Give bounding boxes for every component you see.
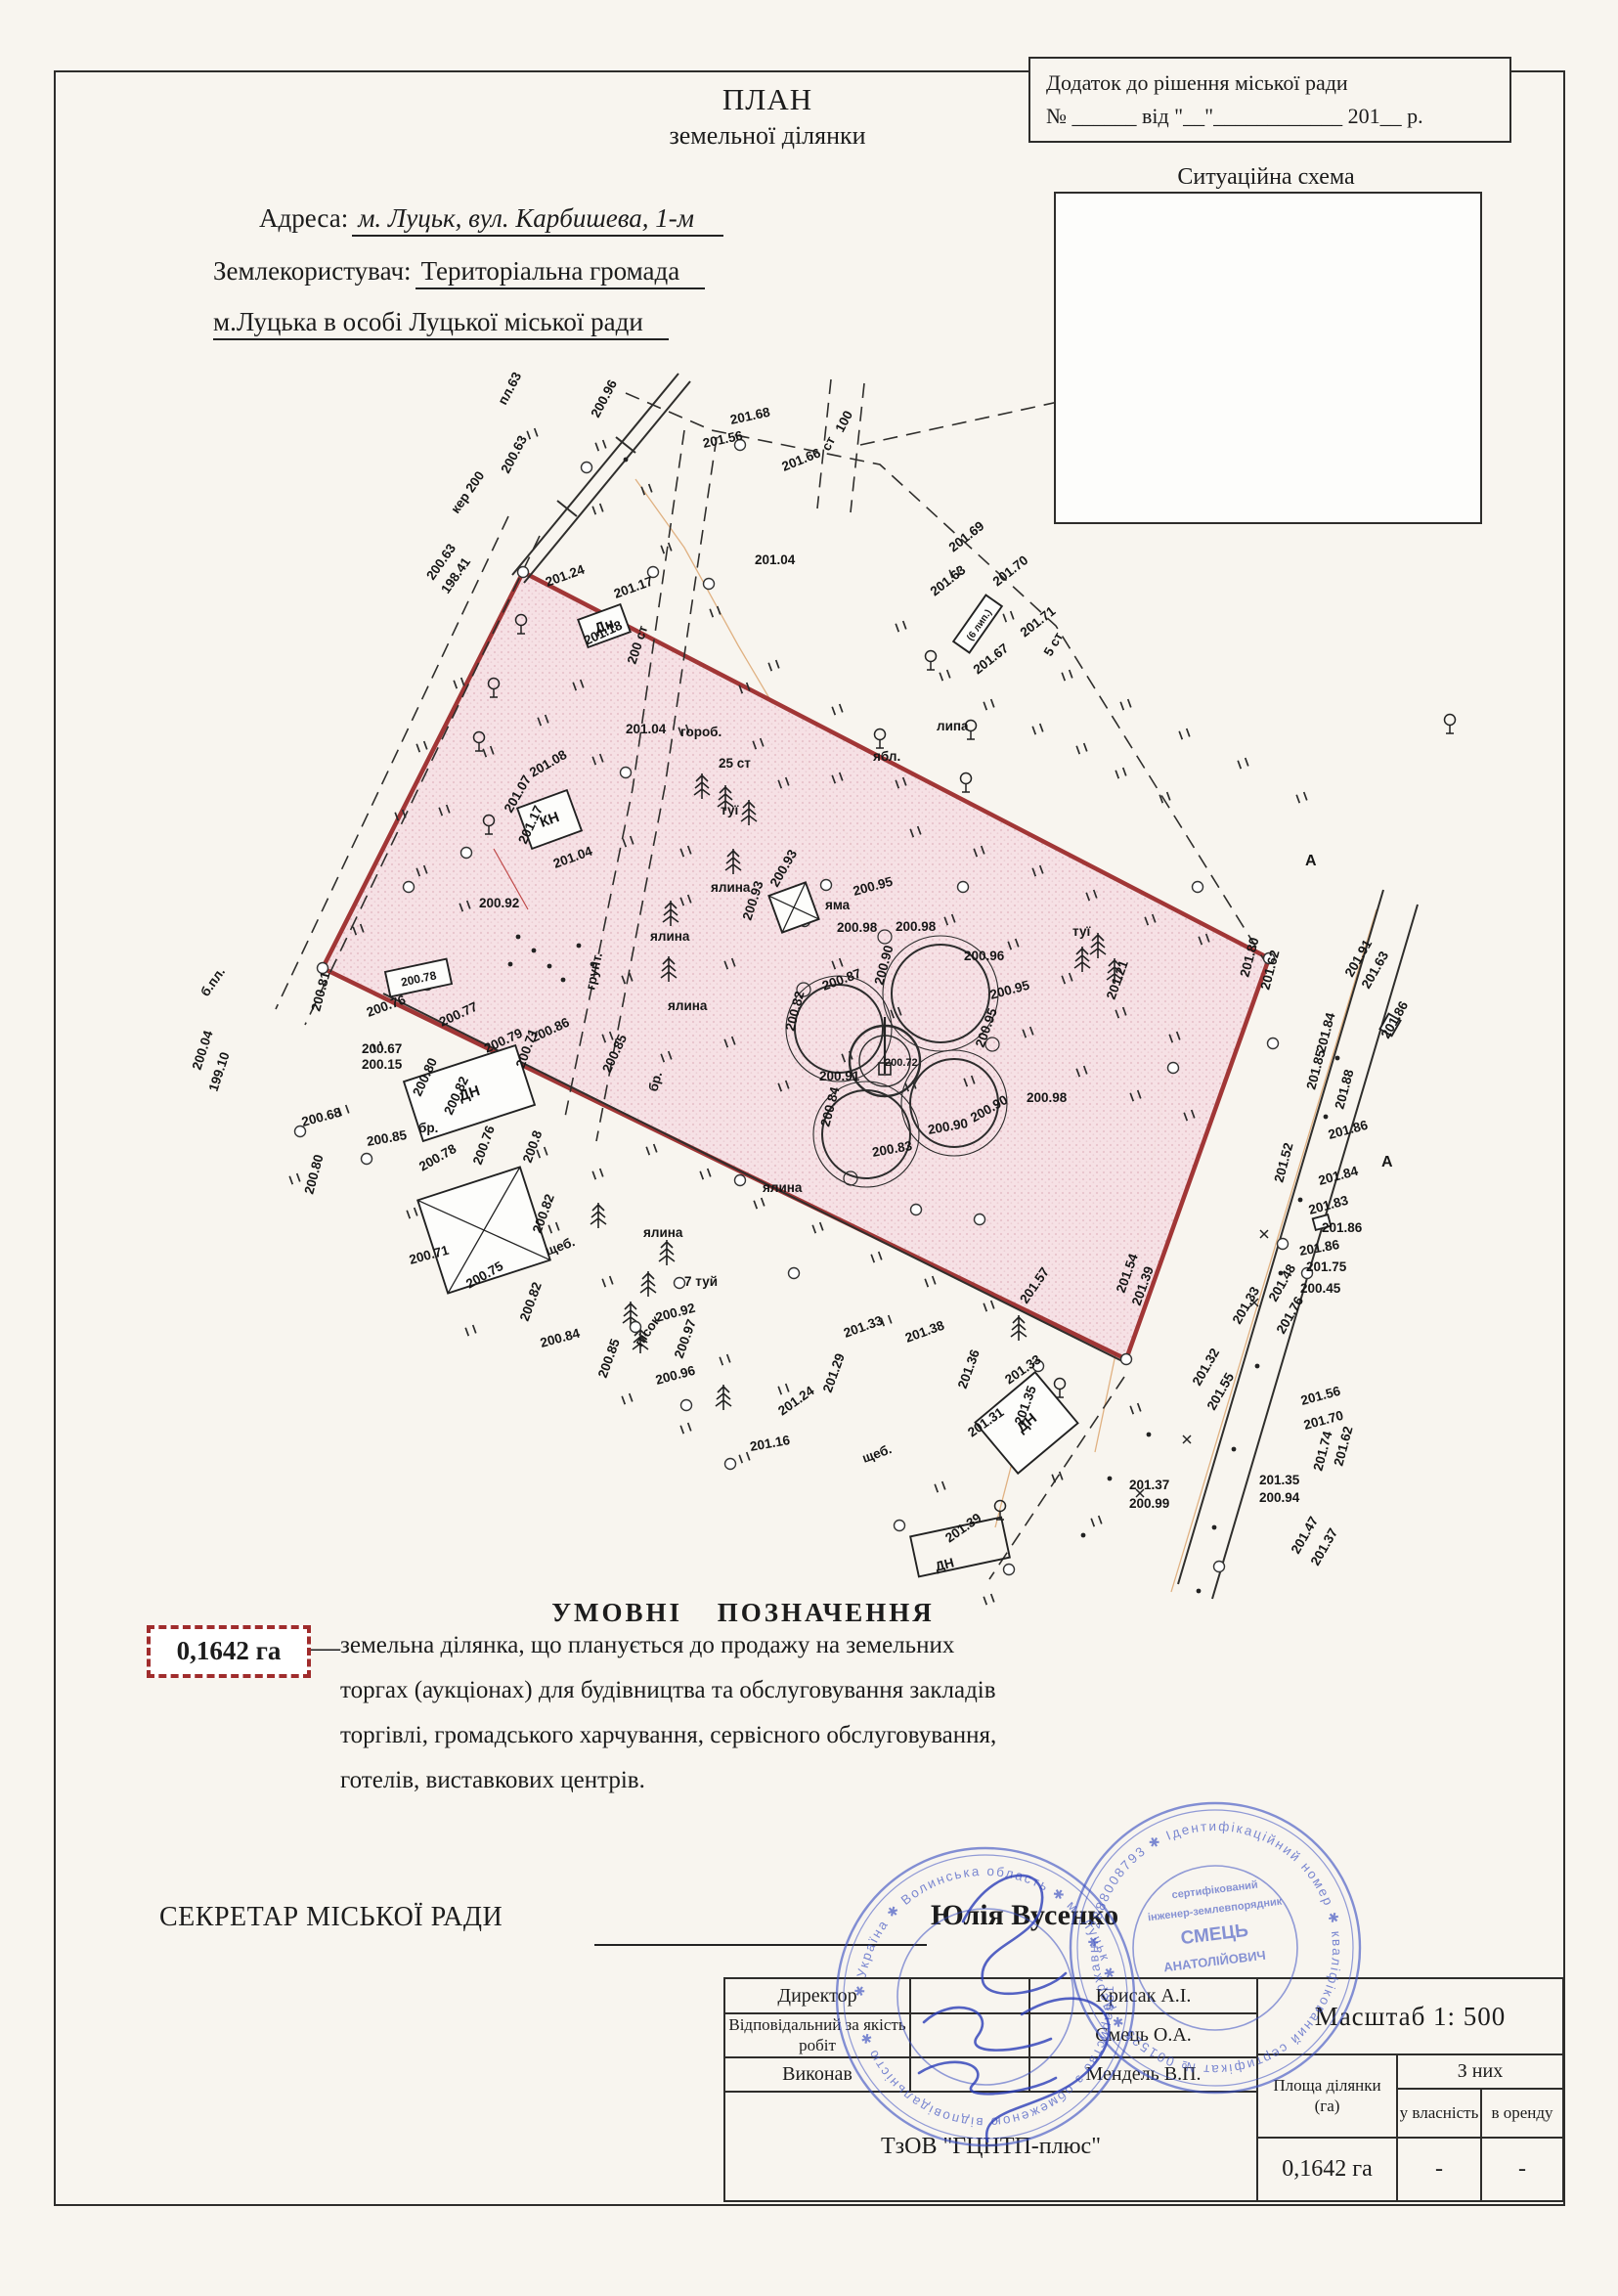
situational-title: Ситуаційна схема <box>1085 164 1447 191</box>
situational-map-box <box>1054 192 1482 524</box>
table-cell-scale: Масштаб 1: 500 <box>1256 1977 1564 2055</box>
table-cell-director-signature <box>909 1977 1030 2014</box>
table-cell-quality-signature <box>909 2012 1030 2058</box>
table-cell-company: ТзОВ "ГЦНТП-плюс" <box>723 2091 1258 2202</box>
landuser-value1: Територіальна громада <box>415 256 706 289</box>
table-cell-rent-header: в оренду <box>1480 2088 1564 2139</box>
legend-paragraph: земельна ділянка, що планується до прода… <box>340 1623 1181 1803</box>
table-cell-quality: Відповідальний за якість робіт <box>723 2012 911 2058</box>
address-value: м. Луцьк, вул. Карбишева, 1-м <box>352 203 723 237</box>
scanned-land-plan-page: { "header": { "title1": "ПЛАН", "title2"… <box>0 0 1618 2296</box>
address-label: Адреса: <box>259 203 348 233</box>
legend-dash: — <box>311 1631 340 1664</box>
page-title: ПЛАН <box>572 82 963 117</box>
table-cell-own-header: у власність <box>1396 2088 1482 2139</box>
table-cell-rent-value: - <box>1480 2137 1564 2202</box>
table-cell-ofthem: З них <box>1396 2053 1564 2090</box>
address-row: Адреса: м. Луцьк, вул. Карбишева, 1-м <box>259 203 723 234</box>
legend-line2: торгах (аукціонах) для будівництва та об… <box>340 1668 1181 1713</box>
annex-box: Додаток до рішення міської ради № ______… <box>1028 57 1511 143</box>
table-cell-director: Директор <box>723 1977 911 2014</box>
legend-line1: земельна ділянка, що планується до прода… <box>340 1623 1181 1668</box>
secretary-name: Юлія Вусенко <box>931 1899 1118 1932</box>
table-cell-executor-signature <box>909 2056 1030 2093</box>
table-cell-executor-name: Мендель В.П. <box>1028 2056 1258 2093</box>
landuser-value2: м.Луцька в особі Луцької міської ради <box>213 307 669 340</box>
table-cell-director-name: Крисак А.І. <box>1028 1977 1258 2014</box>
legend-line3: торгівлі, громадського харчування, серві… <box>340 1713 1181 1758</box>
landuser-row: Землекористувач: Територіальна громада <box>213 256 705 287</box>
page-subtitle: земельної ділянки <box>572 121 963 151</box>
landuser-label: Землекористувач: <box>213 256 412 286</box>
annex-line2: № ______ від "__"____________ 201__ р. <box>1046 100 1494 133</box>
table-cell-own-value: - <box>1396 2137 1482 2202</box>
landuser-row2: м.Луцька в особі Луцької міської ради <box>213 307 669 337</box>
legend-area-box: 0,1642 га <box>147 1625 311 1678</box>
legend-line4: готелів, виставкових центрів. <box>340 1758 1181 1803</box>
annex-line1: Додаток до рішення міської ради <box>1046 66 1494 100</box>
table-cell-executor: Виконав <box>723 2056 911 2093</box>
secretary-label: СЕКРЕТАР МІСЬКОЇ РАДИ <box>159 1902 503 1933</box>
table-cell-area-header: Площа ділянки (га) <box>1256 2053 1398 2139</box>
table-cell-quality-name: Смець О.А. <box>1028 2012 1258 2058</box>
table-cell-area-value: 0,1642 га <box>1256 2137 1398 2202</box>
